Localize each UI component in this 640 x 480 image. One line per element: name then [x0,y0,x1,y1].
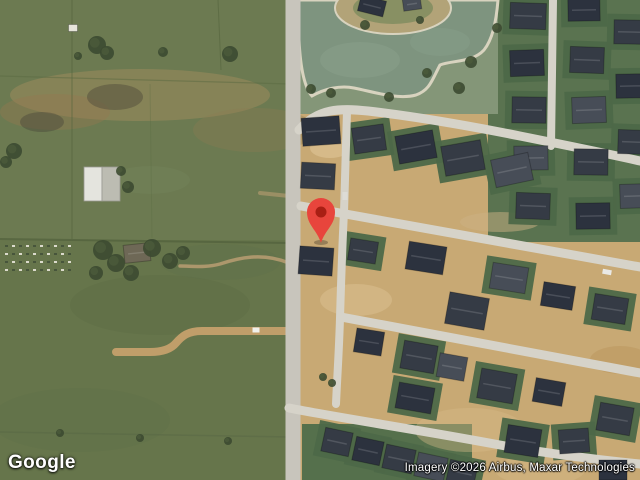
google-logo[interactable]: Google [8,452,76,474]
map-pin-dot [316,207,327,218]
map-pin-icon[interactable] [303,196,339,246]
map-viewport[interactable]: Google Imagery ©2026 Airbus, Maxar Techn… [0,0,640,480]
imagery-attribution: Imagery ©2026 Airbus, Maxar Technologies [405,462,635,474]
map-pin-body [307,198,335,243]
